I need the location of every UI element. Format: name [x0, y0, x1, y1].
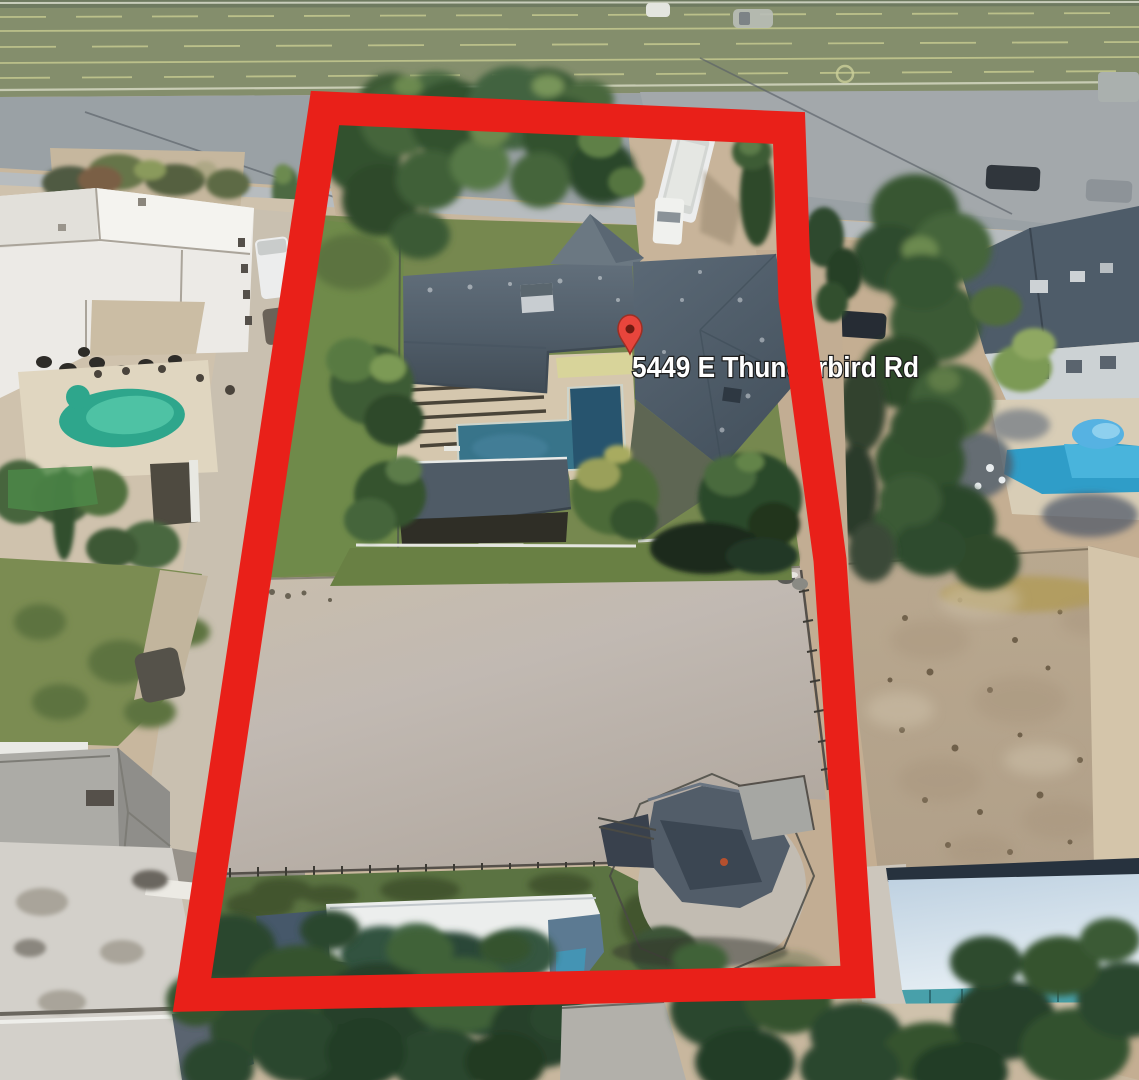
svg-text:5449 E Thunderbird Rd: 5449 E Thunderbird Rd: [632, 352, 919, 384]
